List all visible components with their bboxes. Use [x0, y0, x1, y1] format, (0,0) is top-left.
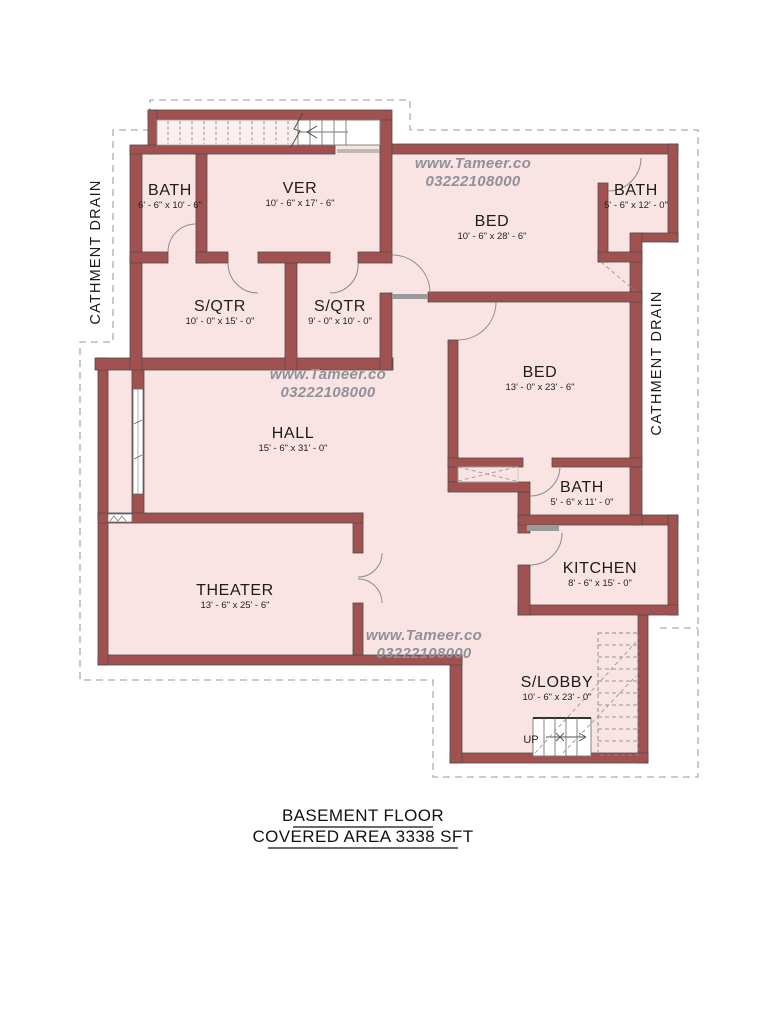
wall: [285, 263, 297, 370]
wall: [638, 615, 648, 763]
up-label: UP: [523, 734, 538, 746]
room-dims-sqtr2: 9' - 0" x 10' - 0": [308, 316, 372, 327]
title-line-1: BASEMENT FLOOR: [282, 806, 444, 825]
wall: [380, 293, 392, 370]
wall: [448, 482, 530, 492]
room-dims-bed1: 10' - 6" x 28' - 6": [458, 231, 527, 242]
sill: [527, 525, 559, 531]
wall: [258, 252, 330, 263]
wall: [353, 603, 363, 655]
room-dims-sqtr1: 10' - 0" x 15' - 0": [186, 316, 255, 327]
wall: [196, 252, 228, 263]
wall: [518, 515, 642, 525]
catchment-drain-left: CATHMENT DRAIN: [88, 179, 104, 324]
wall: [130, 252, 168, 263]
room-label-bath1: BATH: [148, 182, 192, 199]
sill: [392, 294, 428, 299]
watermark-phone-2: 03222108000: [280, 384, 375, 401]
wall: [148, 110, 392, 120]
watermark-phone-3: 03222108000: [376, 645, 471, 662]
wall: [668, 515, 678, 615]
room-label-kitchen: KITCHEN: [563, 560, 637, 577]
title-block: BASEMENT FLOOR COVERED AREA 3338 SFT: [253, 806, 474, 848]
room-label-bed2: BED: [523, 364, 558, 381]
room-label-sqtr2: S/QTR: [314, 298, 366, 315]
wall: [98, 513, 363, 523]
floor-plan-page: BATH 6' - 6" x 10' - 6" VER 10' - 6" x 1…: [0, 0, 759, 1024]
wall: [450, 655, 462, 763]
catchment-drain-right: CATHMENT DRAIN: [649, 290, 665, 435]
wall: [598, 252, 642, 262]
room-dims-bed2: 13' - 0" x 23' - 6": [506, 382, 575, 393]
watermark-site-3: www.Tameer.co: [366, 627, 482, 644]
wall: [518, 565, 530, 615]
wall: [668, 144, 678, 242]
room-dims-ver: 10' - 6" x 17' - 6": [266, 198, 335, 209]
room-dims-theater: 13' - 6" x 25' - 6": [201, 600, 270, 611]
wall: [552, 458, 642, 467]
room-label-bed1: BED: [475, 213, 510, 230]
room-label-sqtr1: S/QTR: [194, 298, 246, 315]
room-label-bath3: BATH: [560, 479, 604, 496]
room-dims-bath1: 6' - 6" x 10' - 6": [138, 200, 202, 211]
wall: [518, 605, 678, 615]
sill: [337, 149, 380, 153]
watermark-phone-1: 03222108000: [425, 173, 520, 190]
room-dims-kitchen: 8' - 6" x 15' - 0": [568, 578, 632, 589]
wall: [380, 144, 678, 154]
room-dims-slobby: 10' - 6" x 23' - 0": [523, 692, 592, 703]
wall: [130, 145, 335, 154]
room-dims-bath2: 5' - 6" x 12' - 0": [604, 200, 668, 211]
title-line-2: COVERED AREA 3338 SFT: [253, 827, 474, 846]
wall: [428, 292, 642, 302]
room-dims-bath3: 5' - 6" x 11' - 0": [551, 497, 614, 508]
room-label-ver: VER: [283, 180, 318, 197]
room-label-hall: HALL: [272, 425, 314, 442]
wall: [98, 358, 108, 665]
watermark-site-2: www.Tameer.co: [270, 366, 386, 383]
window-left: [133, 389, 143, 494]
room-dims-hall: 15' - 6" x 31' - 0": [259, 443, 328, 454]
wall: [630, 233, 642, 525]
vent-icon: [108, 514, 132, 522]
wall: [358, 252, 392, 263]
wall: [380, 120, 392, 255]
room-label-slobby: S/LOBBY: [521, 674, 594, 691]
wall: [598, 183, 608, 262]
wall: [448, 458, 523, 467]
room-label-theater: THEATER: [196, 582, 274, 599]
watermark-site-1: www.Tameer.co: [415, 155, 531, 172]
floor-plan-drawing: BATH 6' - 6" x 10' - 6" VER 10' - 6" x 1…: [0, 0, 759, 1024]
room-label-bath2: BATH: [614, 182, 658, 199]
